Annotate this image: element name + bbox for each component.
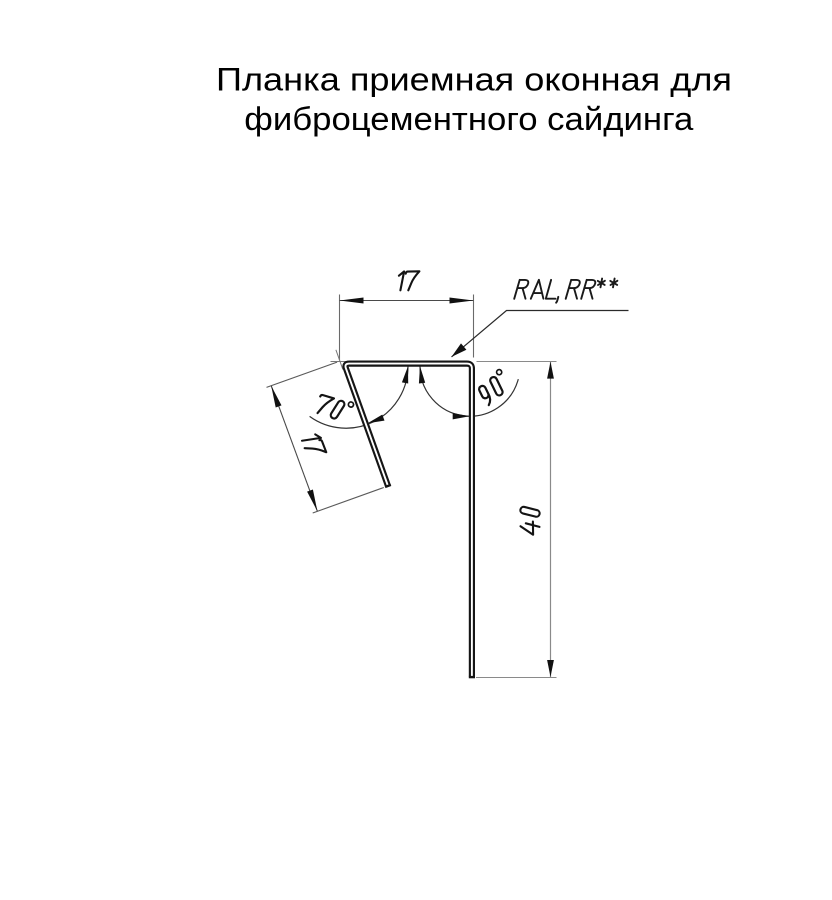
svg-text:фиброцементного сайдинга: фиброцементного сайдинга bbox=[244, 101, 693, 137]
svg-text:Планка приемная оконная для: Планка приемная оконная для bbox=[216, 61, 732, 97]
